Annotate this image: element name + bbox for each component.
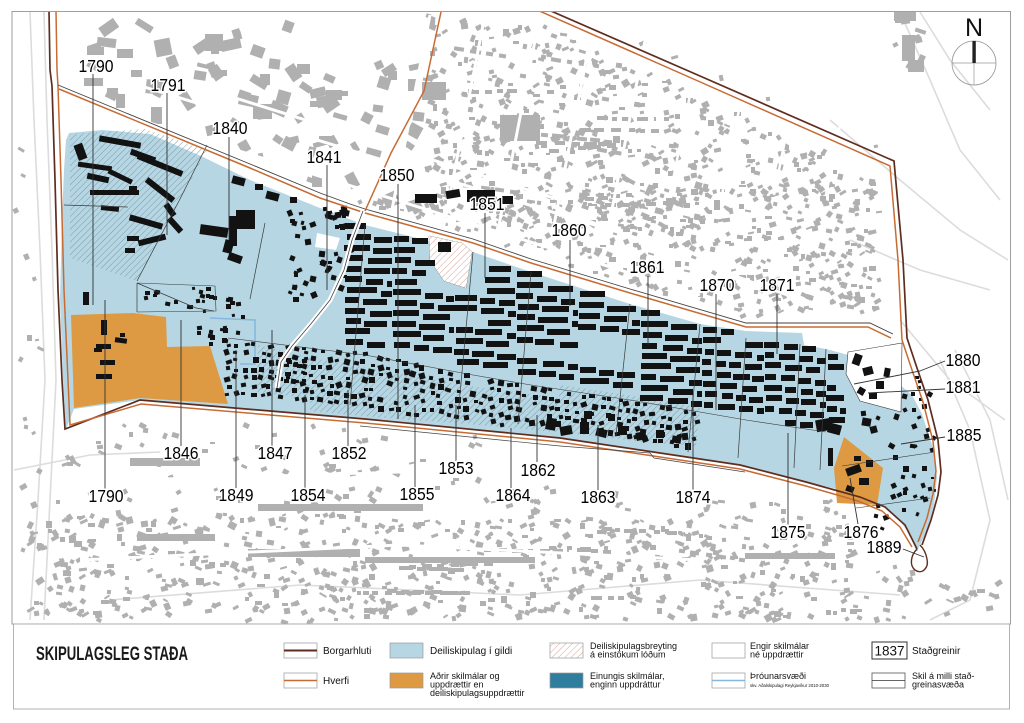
svg-text:greinasvæða: greinasvæða (912, 680, 964, 690)
svg-text:á einstökum lóðum: á einstökum lóðum (590, 650, 666, 660)
svg-text:1846: 1846 (164, 443, 199, 463)
svg-text:1854: 1854 (291, 485, 326, 505)
svg-text:1849: 1849 (219, 485, 254, 505)
svg-text:1852: 1852 (332, 443, 367, 463)
svg-text:1855: 1855 (400, 484, 435, 504)
svg-text:1860: 1860 (552, 220, 587, 240)
svg-text:1861: 1861 (630, 257, 665, 277)
svg-text:Borgarhluti: Borgarhluti (323, 646, 371, 657)
svg-text:Þróunarsvæði: Þróunarsvæði (750, 671, 806, 681)
svg-text:1862: 1862 (521, 460, 556, 480)
svg-text:1790: 1790 (79, 56, 114, 76)
svg-text:skv. Aðalskipulagi Reykjavíkur: skv. Aðalskipulagi Reykjavíkur 2010-2030 (750, 683, 830, 688)
svg-text:1885: 1885 (947, 425, 982, 445)
svg-text:1880: 1880 (946, 350, 981, 370)
svg-text:Hverfi: Hverfi (323, 676, 349, 687)
svg-text:1841: 1841 (307, 147, 342, 167)
svg-text:1881: 1881 (946, 377, 981, 397)
svg-text:1837: 1837 (874, 644, 904, 659)
svg-text:1875: 1875 (771, 522, 806, 542)
svg-text:enginn uppdráttur: enginn uppdráttur (590, 680, 661, 690)
svg-text:1874: 1874 (676, 487, 711, 507)
svg-text:SKIPULAGSLEG STAĐA: SKIPULAGSLEG STAĐA (36, 644, 188, 665)
svg-text:1871: 1871 (760, 275, 795, 295)
svg-text:1870: 1870 (700, 275, 735, 295)
svg-text:1864: 1864 (496, 485, 531, 505)
svg-text:1863: 1863 (581, 487, 616, 507)
svg-text:Deiliskipulag í gildi: Deiliskipulag í gildi (430, 646, 512, 657)
svg-text:N: N (965, 14, 983, 42)
svg-text:1851: 1851 (470, 194, 505, 214)
svg-text:né uppdrættir: né uppdrættir (750, 650, 804, 660)
svg-text:1850: 1850 (380, 165, 415, 185)
svg-text:1853: 1853 (439, 458, 474, 478)
svg-text:deiliskipulagsuppdrættir: deiliskipulagsuppdrættir (430, 688, 525, 698)
svg-text:1889: 1889 (867, 537, 902, 557)
svg-text:1790: 1790 (89, 486, 124, 506)
svg-text:Staðgreinir: Staðgreinir (912, 645, 961, 657)
svg-text:1791: 1791 (151, 75, 186, 95)
svg-text:1840: 1840 (213, 118, 248, 138)
svg-text:1847: 1847 (258, 443, 293, 463)
